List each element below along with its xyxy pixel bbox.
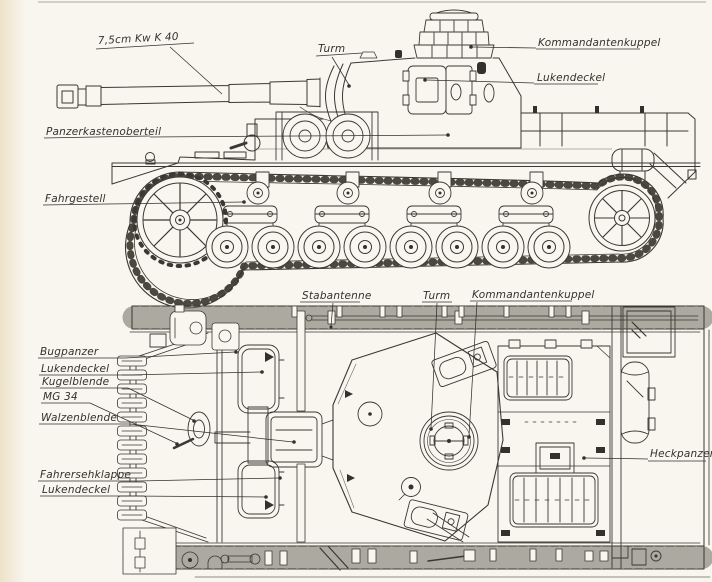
- label-heckpanzer: Heckpanzer: [650, 448, 712, 460]
- label-fahrersehklappe: Fahrersehklappe: [40, 469, 131, 481]
- pistol-port: [477, 62, 486, 74]
- scanned-diagram-page: 7,5cm Kw K 40 Turm Kommandantenkuppel Lu…: [0, 0, 712, 582]
- label-fahrgestell: Fahrgestell: [45, 193, 106, 205]
- label-walzenblende: Walzenblende: [41, 412, 117, 424]
- label-turm-plan: Turm: [423, 290, 450, 302]
- label-kuppel-side: Kommandantenkuppel: [538, 37, 661, 49]
- scan-edge-shadow: [0, 0, 26, 582]
- label-mg34: MG 34: [43, 391, 78, 403]
- idler-wheel: [589, 185, 655, 251]
- signal-port: [395, 50, 402, 58]
- label-kugelblende: Kugelblende: [42, 376, 109, 388]
- label-luke1-plan: Lukendeckel: [41, 363, 109, 375]
- blueprint-canvas: 7,5cm Kw K 40 Turm Kommandantenkuppel Lu…: [0, 0, 712, 582]
- label-kuppel-plan: Kommandantenkuppel: [472, 289, 595, 301]
- label-stabantenne: Stabantenne: [302, 290, 372, 302]
- label-bugpanzer: Bugpanzer: [40, 346, 99, 358]
- label-luke-side: Lukendeckel: [537, 72, 605, 84]
- label-panzerkasten: Panzerkastenoberteil: [46, 126, 161, 138]
- label-luke2-plan: Lukendeckel: [42, 484, 110, 496]
- label-turm-side: Turm: [318, 43, 345, 55]
